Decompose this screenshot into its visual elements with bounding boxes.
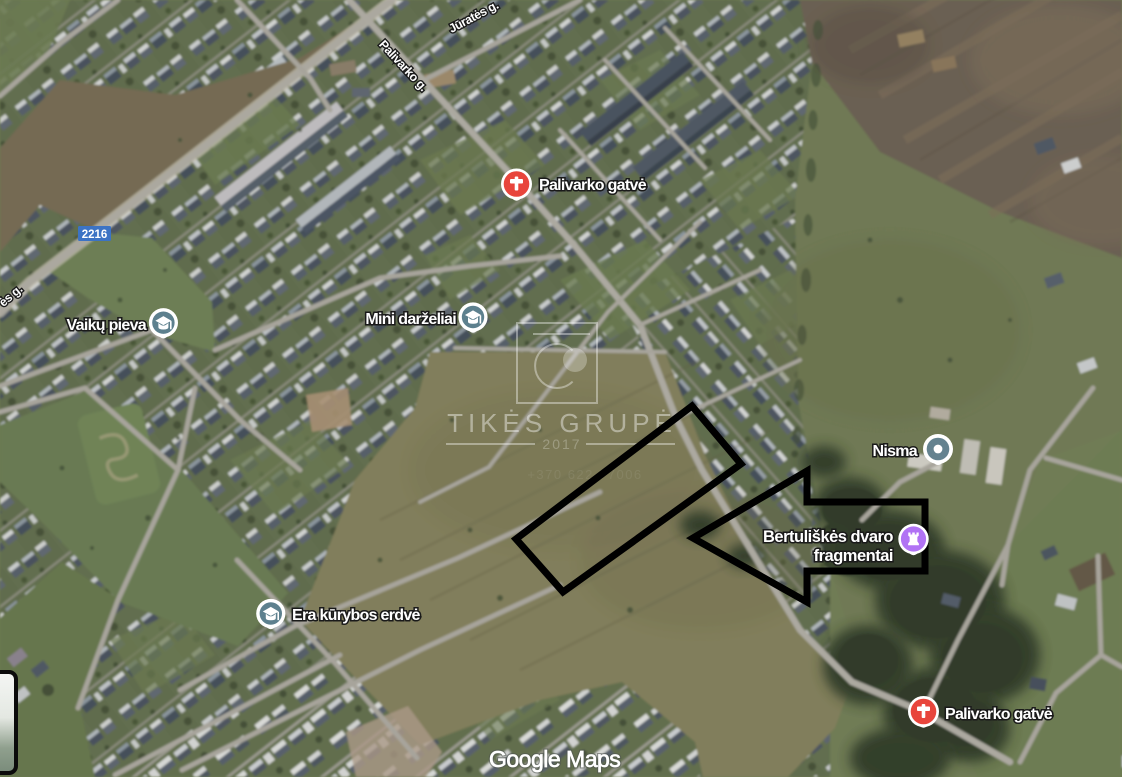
svg-text:Google Maps: Google Maps <box>489 746 620 772</box>
svg-text:Bertuliškės dvaro: Bertuliškės dvaro <box>763 528 893 546</box>
svg-text:Palivarko gatvė: Palivarko gatvė <box>945 706 1053 723</box>
svg-text:+370 622 77006: +370 622 77006 <box>527 467 642 482</box>
svg-text:Mini darželiai: Mini darželiai <box>365 311 456 328</box>
svg-text:Nisma: Nisma <box>872 443 917 460</box>
svg-text:TIKĖS GRUPĖ: TIKĖS GRUPĖ <box>447 408 677 438</box>
svg-text:fragmentai: fragmentai <box>814 547 893 565</box>
svg-text:2216: 2216 <box>82 229 108 241</box>
svg-text:Vaikų pieva: Vaikų pieva <box>67 317 147 334</box>
svg-text:Era kūrybos erdvė: Era kūrybos erdvė <box>292 607 421 624</box>
svg-text:2017: 2017 <box>542 436 581 452</box>
svg-text:Palivarko gatvė: Palivarko gatvė <box>539 177 647 194</box>
